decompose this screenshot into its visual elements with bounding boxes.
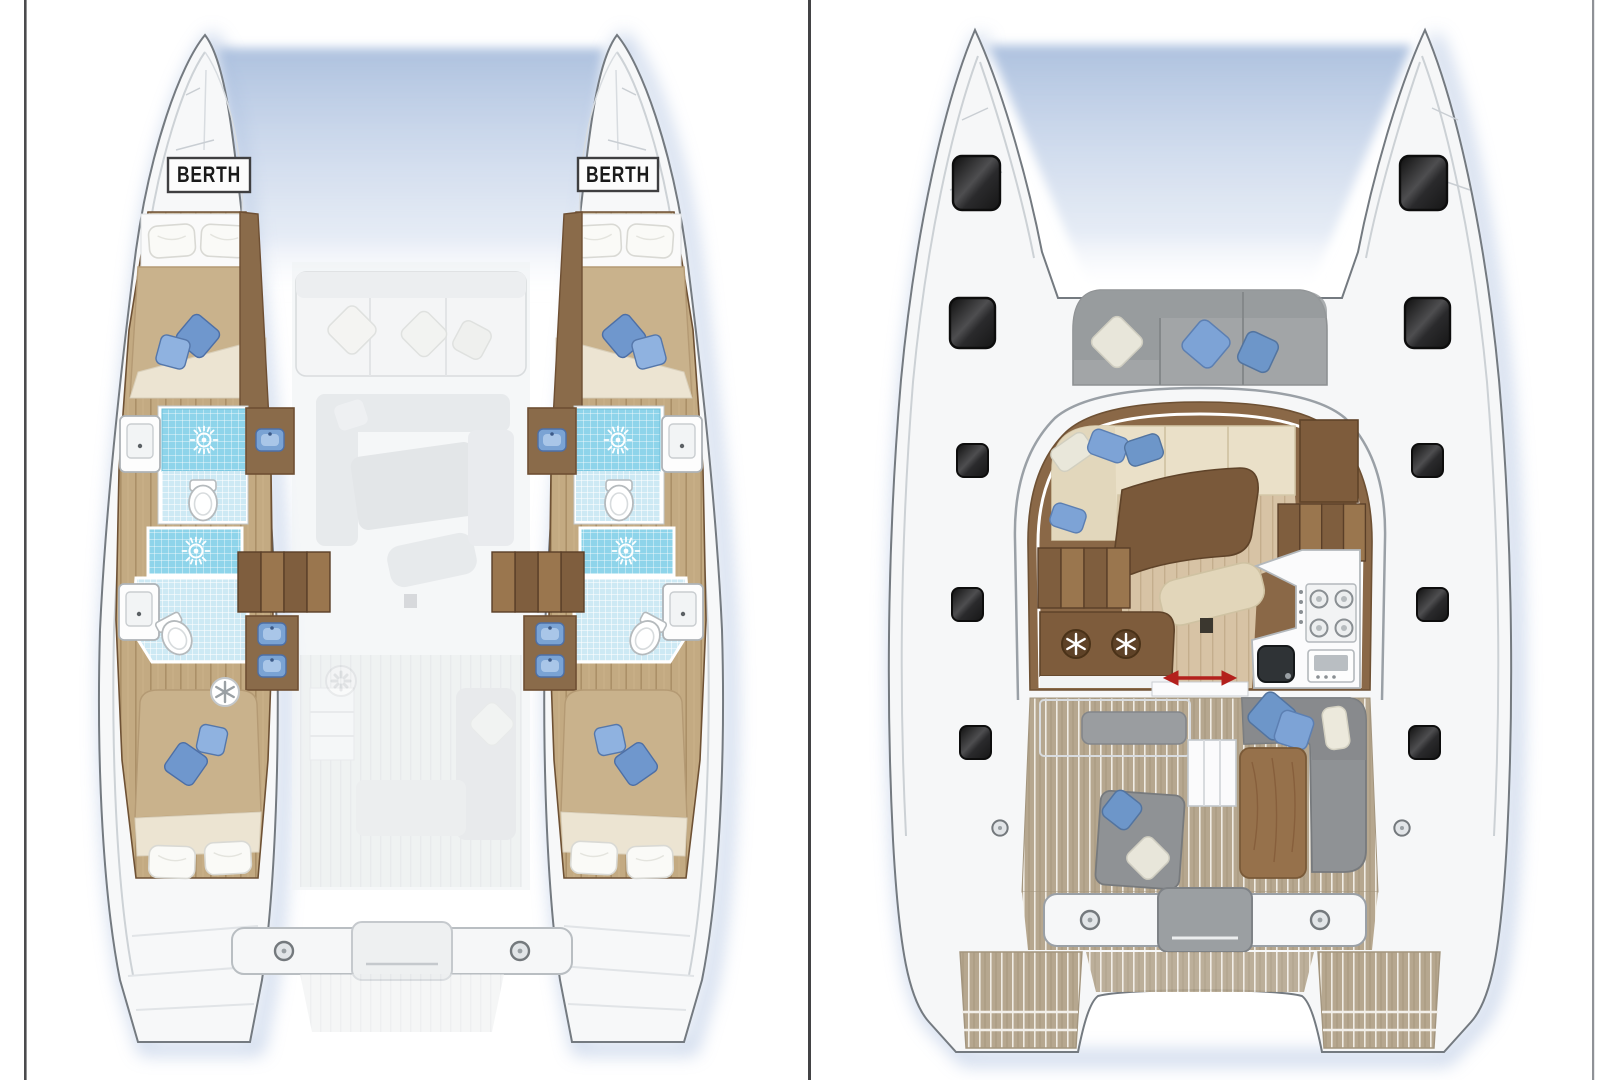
bed-pillow xyxy=(148,223,196,258)
vanity-basin-icon xyxy=(258,623,286,645)
round-fitting-icon xyxy=(275,942,293,960)
round-fitting-icon xyxy=(511,942,529,960)
round-fitting-icon xyxy=(1081,911,1099,929)
aft-cabin xyxy=(135,690,261,879)
stern-center-step xyxy=(352,922,452,980)
helm-bench xyxy=(1082,712,1186,744)
mid-shower xyxy=(148,528,242,575)
table-leg xyxy=(1200,618,1213,633)
floorplan-canvas: BERTH BERTH xyxy=(0,0,1620,1080)
hull-deck-plan: BERTH BERTH xyxy=(99,35,730,1048)
frame-line-divider xyxy=(808,0,811,1080)
round-fitting-icon xyxy=(992,820,1007,835)
shower-rose-icon xyxy=(183,538,210,565)
stove-burner-icon xyxy=(1311,591,1328,608)
berth-label-text: BERTH xyxy=(586,162,650,187)
cockpit-ghost xyxy=(300,655,522,887)
swim-platform xyxy=(1318,952,1440,1048)
berth-label-starboard: BERTH xyxy=(578,158,658,191)
bed-pillow xyxy=(204,841,252,875)
toilet-icon xyxy=(189,480,217,521)
vanity-forward xyxy=(246,408,294,474)
throw-cushion-blue xyxy=(195,723,228,756)
sink-icon xyxy=(120,416,160,472)
round-fitting-icon xyxy=(1394,820,1409,835)
foredeck-bench-ghost xyxy=(296,272,526,376)
frame-line-right xyxy=(1592,0,1594,1080)
main-deck-plan xyxy=(889,30,1516,1058)
stern-crossbeam xyxy=(232,922,572,980)
stove-burner-icon xyxy=(1336,620,1353,637)
swim-platforms xyxy=(960,952,1440,1048)
salon xyxy=(1028,402,1372,696)
salon-cabinet-starboard xyxy=(1300,420,1358,502)
round-fitting-icon xyxy=(1311,911,1329,929)
shower-rose-icon xyxy=(191,427,218,454)
vanity-basin-icon xyxy=(258,655,286,677)
swim-platform xyxy=(960,952,1082,1048)
stove-burner-icon xyxy=(1311,620,1328,637)
bed-pillow xyxy=(148,845,195,879)
berth-label-text: BERTH xyxy=(177,162,241,187)
companionway-steps-deck xyxy=(1188,740,1236,806)
berth-label-port: BERTH xyxy=(168,158,250,192)
aft-deck-ghost xyxy=(300,974,504,1032)
stern-gap-deck xyxy=(1086,952,1314,992)
vanity-aft xyxy=(246,616,298,690)
bow-gap-shading xyxy=(988,45,1412,295)
salon-stairs-port xyxy=(1038,548,1130,608)
vanity-basin-icon xyxy=(256,429,284,451)
catamaran-floorplan-page: BERTH BERTH xyxy=(0,0,1620,1080)
frame-line-left xyxy=(24,0,27,1080)
sliding-door-sill xyxy=(1152,682,1248,696)
stove-burner-icon xyxy=(1336,591,1353,608)
cockpit-sofa-port xyxy=(1095,788,1185,890)
sink-icon xyxy=(119,584,159,640)
hull-fridge xyxy=(211,678,239,706)
stern-center-step xyxy=(1158,888,1252,952)
galley-fridges xyxy=(1040,612,1174,676)
cockpit-pillow-cream xyxy=(1321,706,1351,751)
companionway-stairs xyxy=(238,552,330,612)
bow-lounge-seating xyxy=(1073,290,1327,385)
oven-icon xyxy=(1308,650,1354,682)
stern-crossbeam-deck xyxy=(1044,888,1366,952)
